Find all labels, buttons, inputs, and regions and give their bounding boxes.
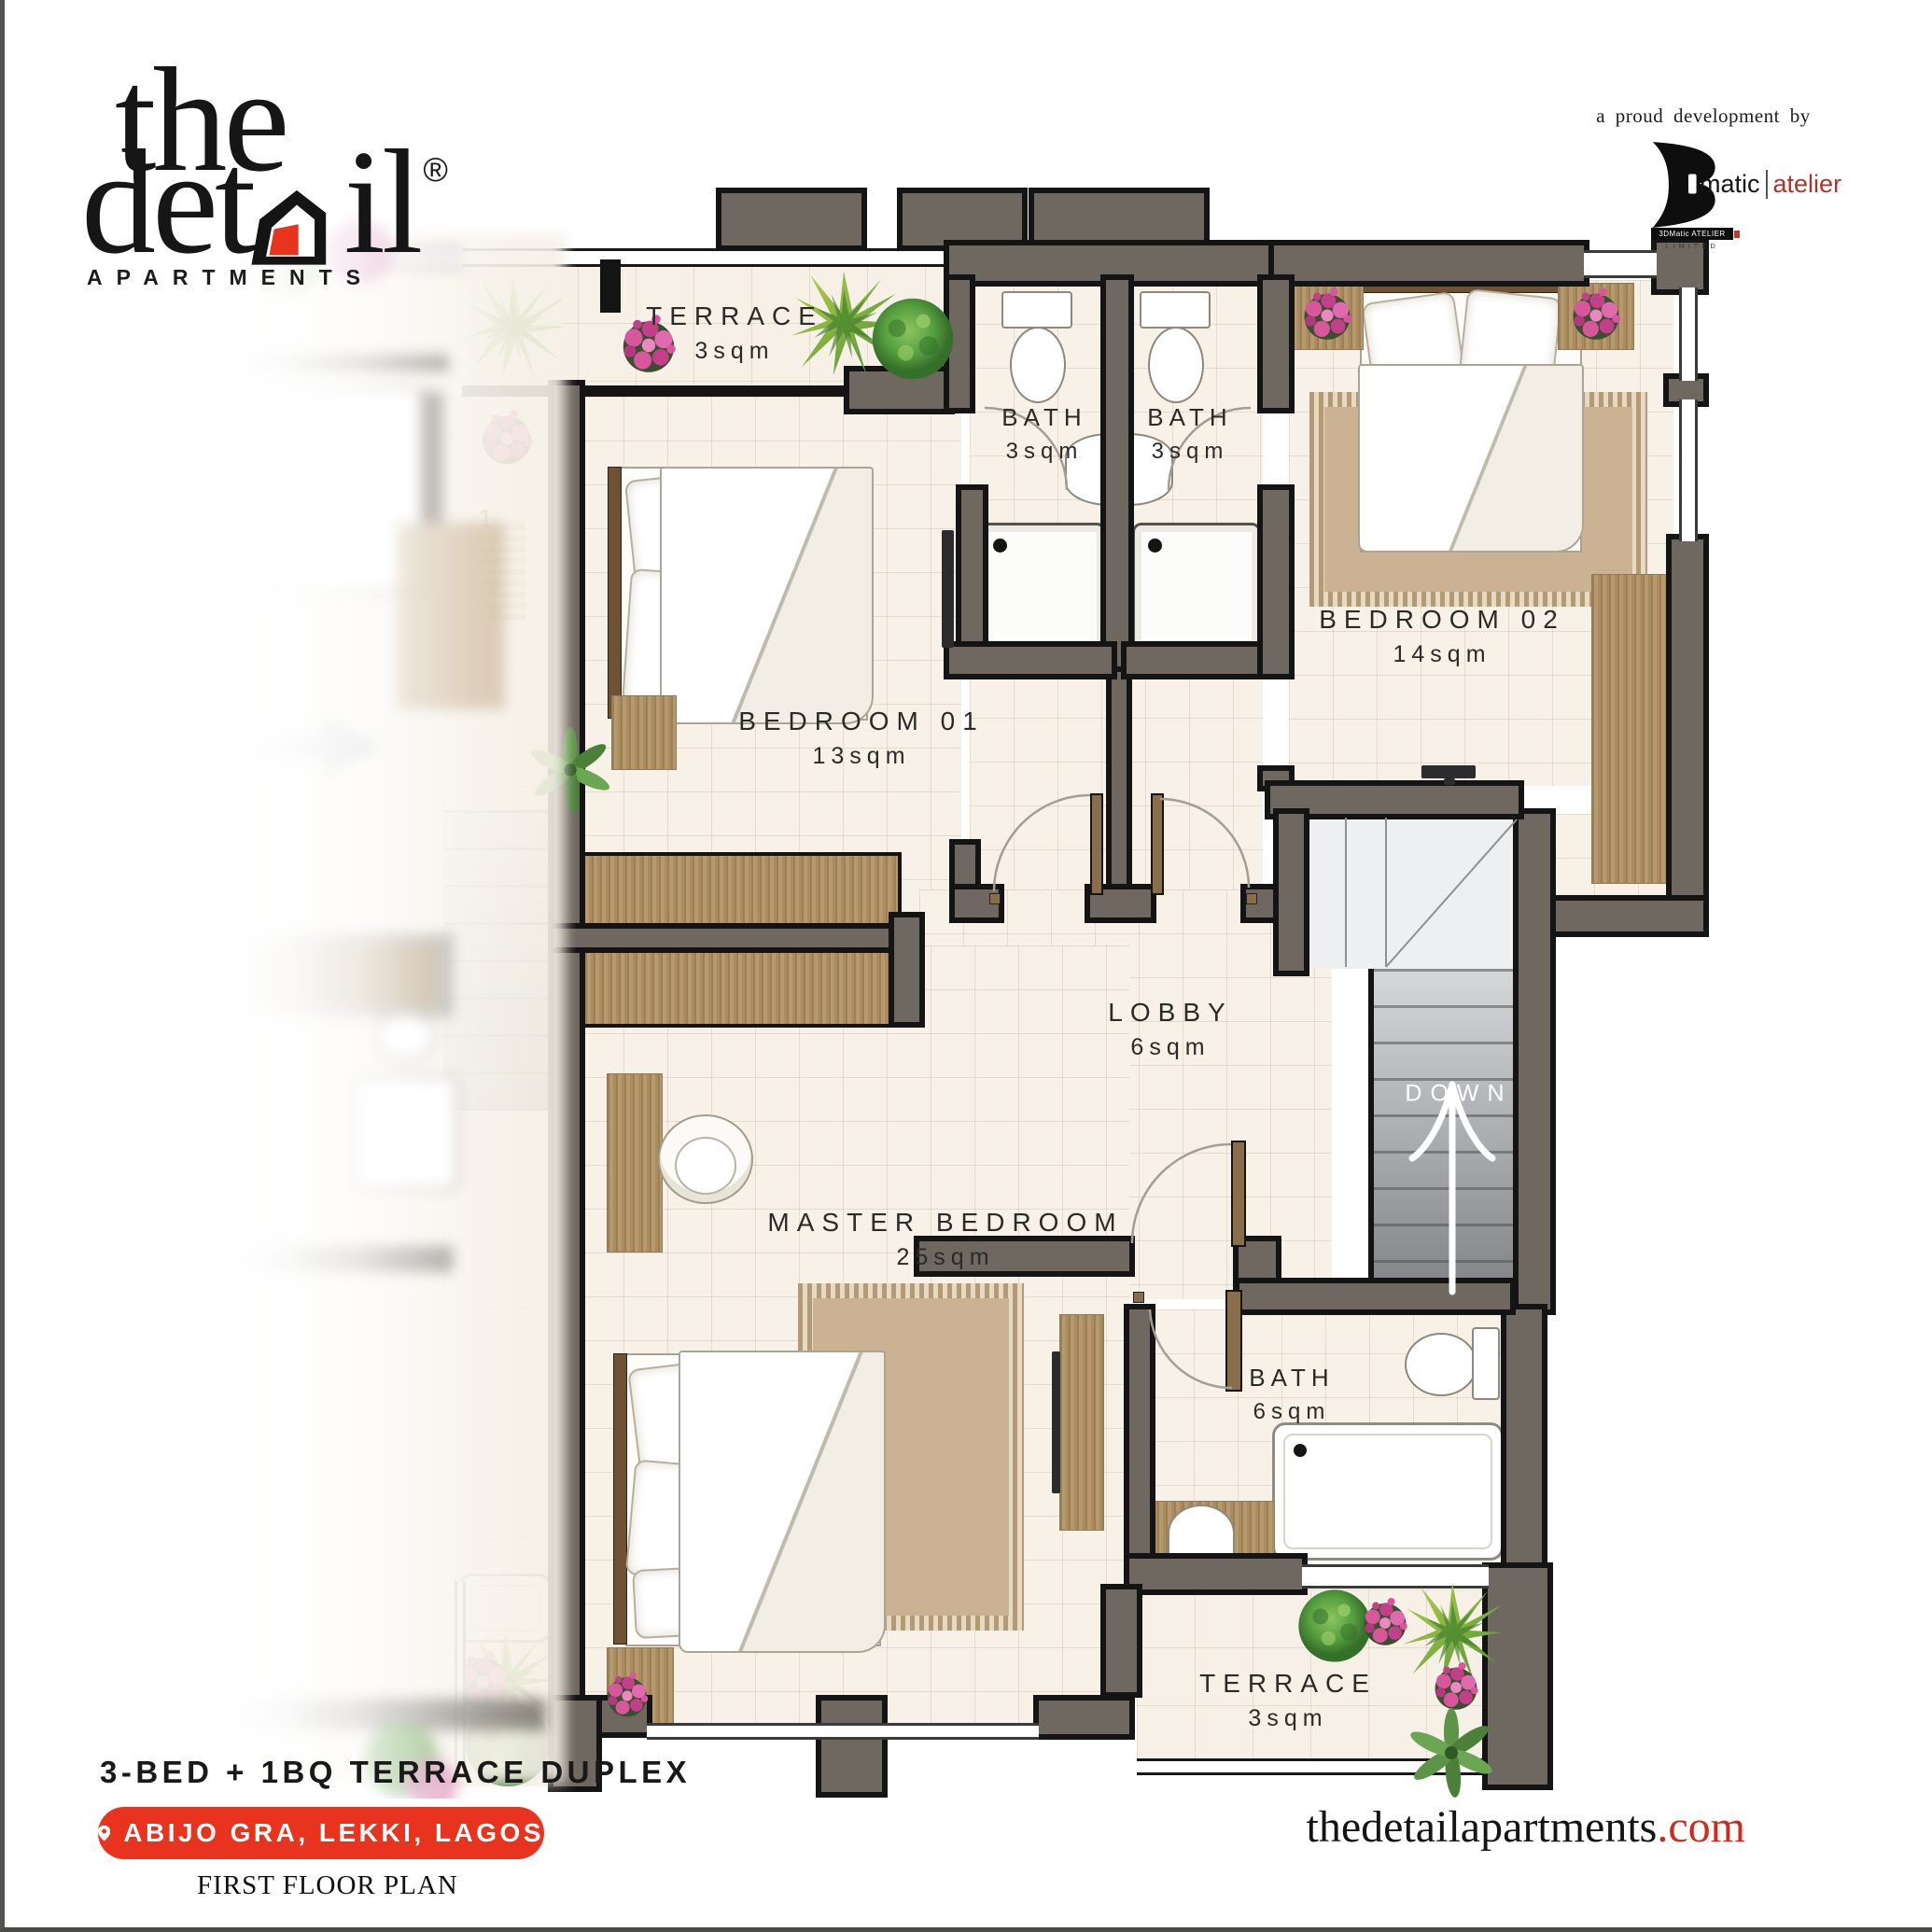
developer-limited: LIMITED bbox=[1651, 242, 1733, 250]
toilet-bowl bbox=[1148, 327, 1204, 403]
wall-segment bbox=[1263, 490, 1289, 674]
door-leaf bbox=[1225, 1290, 1242, 1392]
developer-bar: 3DMatic ATELIER bbox=[1651, 228, 1733, 240]
wall-segment bbox=[1239, 1283, 1510, 1309]
room-label-bath-b: BATH 3sqm bbox=[1147, 403, 1232, 465]
stairs-down-label: DOWN bbox=[1405, 1081, 1512, 1108]
master-console-right bbox=[1059, 1314, 1104, 1531]
master-armchair bbox=[658, 1114, 753, 1204]
stair-edge-line bbox=[1368, 969, 1374, 1299]
bedroom-02-tv-stand bbox=[1444, 778, 1455, 785]
bedroom-01-wood-mat bbox=[611, 695, 677, 770]
window bbox=[1679, 287, 1698, 381]
wall-segment bbox=[721, 193, 861, 245]
wall-segment bbox=[821, 1701, 882, 1792]
wall-segment bbox=[1270, 786, 1519, 814]
stair-landing bbox=[1304, 816, 1519, 969]
bed-duvet bbox=[679, 1351, 886, 1653]
bathtub bbox=[1272, 1422, 1504, 1561]
wall-segment bbox=[600, 259, 621, 313]
wall-segment bbox=[1669, 379, 1703, 401]
wardrobe bbox=[580, 852, 902, 938]
door-jamb bbox=[1133, 1292, 1144, 1303]
bedroom-02-wood-deck bbox=[1591, 574, 1673, 884]
neighbor-wall bbox=[420, 392, 442, 523]
room-label-bath-master: BATH 6sqm bbox=[1249, 1364, 1334, 1425]
developer-bar-text: 3DMatic ATELIER bbox=[1659, 230, 1725, 238]
registered-mark: ® bbox=[423, 153, 444, 187]
developer-name-red: atelier bbox=[1768, 170, 1842, 199]
wall-segment bbox=[1263, 280, 1289, 408]
wall-segment bbox=[1279, 814, 1304, 971]
developer-name-black: matic bbox=[1700, 170, 1768, 199]
wall-segment bbox=[1039, 1701, 1129, 1734]
fern-plant-icon bbox=[1405, 1706, 1498, 1799]
door-leaf bbox=[1231, 1141, 1246, 1247]
bedroom-01-tv bbox=[942, 530, 954, 648]
wall-segment bbox=[553, 929, 896, 947]
wall-segment bbox=[894, 917, 919, 1022]
wall-segment bbox=[1542, 901, 1703, 931]
room-label-bedroom-02: BEDROOM 02 14sqm bbox=[1319, 605, 1565, 668]
neighbor-wall bbox=[84, 355, 448, 371]
wall-segment bbox=[1274, 245, 1584, 281]
wall-segment bbox=[1034, 193, 1204, 245]
neighbor-bed bbox=[224, 387, 426, 594]
wall-segment bbox=[1106, 1589, 1137, 1692]
master-bed bbox=[625, 1353, 881, 1646]
neighbor-wall bbox=[219, 1246, 453, 1272]
master-console-left bbox=[607, 1073, 663, 1253]
logo-il-text: il bbox=[343, 127, 419, 276]
toilet-tank bbox=[1140, 291, 1211, 329]
master-tv bbox=[1052, 1351, 1060, 1493]
flowers-plant-icon bbox=[1293, 282, 1362, 349]
developer-tagline: a proud development by bbox=[1535, 105, 1871, 128]
room-label-bath-a: BATH 3sqm bbox=[1001, 403, 1086, 465]
house-icon bbox=[248, 181, 345, 271]
neighbor-toilet bbox=[373, 1013, 437, 1061]
location-pill: ABIJO GRA, LEKKI, LAGOS bbox=[98, 1807, 544, 1859]
unit-title: 3-BED + 1BQ TERRACE DUPLEX bbox=[100, 1755, 691, 1790]
developer-bar-red-square bbox=[1734, 231, 1740, 238]
toilet-bowl bbox=[1405, 1333, 1477, 1396]
flyer-canvas: the det il ® APARTMENTS a proud developm… bbox=[0, 0, 1932, 1932]
flowers-plant-icon bbox=[598, 1667, 656, 1725]
bed-duvet bbox=[660, 467, 874, 724]
wall-segment bbox=[1129, 1559, 1302, 1589]
bush-plant-icon bbox=[869, 295, 957, 383]
flowers-plant-icon bbox=[1560, 282, 1632, 349]
wall-segment bbox=[1112, 672, 1127, 901]
wall-segment bbox=[1672, 539, 1703, 931]
website-url: thedetailapartments.com bbox=[1307, 1801, 1745, 1853]
website-red: .com bbox=[1657, 1802, 1745, 1852]
logo-subtitle: APARTMENTS bbox=[87, 265, 374, 290]
neighbor-wall bbox=[79, 1699, 546, 1730]
bed-headboard bbox=[613, 1353, 627, 1645]
wall-segment bbox=[949, 647, 1112, 674]
room-label-bedroom-01: BEDROOM 01 13sqm bbox=[738, 707, 985, 770]
location-text: ABIJO GRA, LEKKI, LAGOS bbox=[123, 1818, 544, 1848]
neighbor-rug bbox=[397, 523, 504, 709]
room-label-master-bedroom: MASTER BEDROOM 25sqm bbox=[767, 1208, 1123, 1271]
wall-segment bbox=[949, 245, 1274, 281]
wall-segment bbox=[1106, 280, 1128, 672]
door-leaf bbox=[1090, 793, 1103, 895]
shower-tray bbox=[977, 523, 1106, 650]
window bbox=[1679, 399, 1698, 541]
sink bbox=[1168, 1505, 1235, 1557]
brand-logo: the det il ® APARTMENTS bbox=[81, 45, 473, 297]
wall-segment bbox=[1519, 814, 1550, 1309]
plan-name: FIRST FLOOR PLAN bbox=[197, 1870, 458, 1901]
toilet-tank bbox=[1001, 291, 1072, 329]
website-black: thedetailapartments bbox=[1307, 1802, 1658, 1852]
toilet-bowl bbox=[1010, 327, 1066, 403]
shower-tray bbox=[1132, 523, 1261, 650]
developer-name: matic atelier bbox=[1700, 170, 1841, 199]
wall-segment bbox=[1127, 647, 1274, 674]
location-pin-icon bbox=[98, 1818, 110, 1848]
neighbor-wardrobe bbox=[154, 943, 434, 1008]
door-leaf bbox=[1151, 793, 1164, 895]
wall-segment bbox=[1506, 1309, 1542, 1589]
room-label-terrace-bottom: TERRACE 3sqm bbox=[1199, 1669, 1377, 1732]
wall-segment bbox=[1263, 771, 1289, 786]
wall-segment bbox=[903, 193, 1022, 245]
neighbor-terrace-label: TERRACE bbox=[100, 296, 255, 325]
bed-headboard bbox=[608, 467, 622, 719]
developer-block: a proud development by matic atelier 3DM… bbox=[1535, 105, 1871, 128]
window bbox=[1584, 250, 1657, 278]
toilet-tank bbox=[1472, 1327, 1500, 1400]
window bbox=[647, 1723, 1039, 1740]
room-label-lobby: LOBBY 6sqm bbox=[1108, 998, 1232, 1061]
neighbor-arrow bbox=[219, 714, 383, 779]
door-jamb bbox=[1246, 893, 1257, 904]
door-jamb bbox=[989, 893, 1001, 904]
wall-segment bbox=[1129, 1309, 1150, 1559]
bed-duvet bbox=[1358, 364, 1584, 553]
bedroom-01-bed bbox=[620, 467, 868, 721]
neighbor-tub bbox=[352, 1075, 458, 1191]
bedroom-02-tv bbox=[1421, 765, 1476, 778]
wardrobe bbox=[581, 945, 903, 1028]
neighbor-blurred-unit: TERRACE 3sqm bbox=[5, 182, 576, 1799]
stair-steps bbox=[1374, 969, 1519, 1299]
logo-word-detail: det il ® bbox=[81, 127, 444, 276]
neighbor-wall bbox=[61, 392, 81, 1699]
room-label-terrace-top: TERRACE 3sqm bbox=[646, 301, 823, 365]
bedroom-02-bed bbox=[1360, 289, 1582, 553]
logo-det-text: det bbox=[81, 127, 252, 276]
